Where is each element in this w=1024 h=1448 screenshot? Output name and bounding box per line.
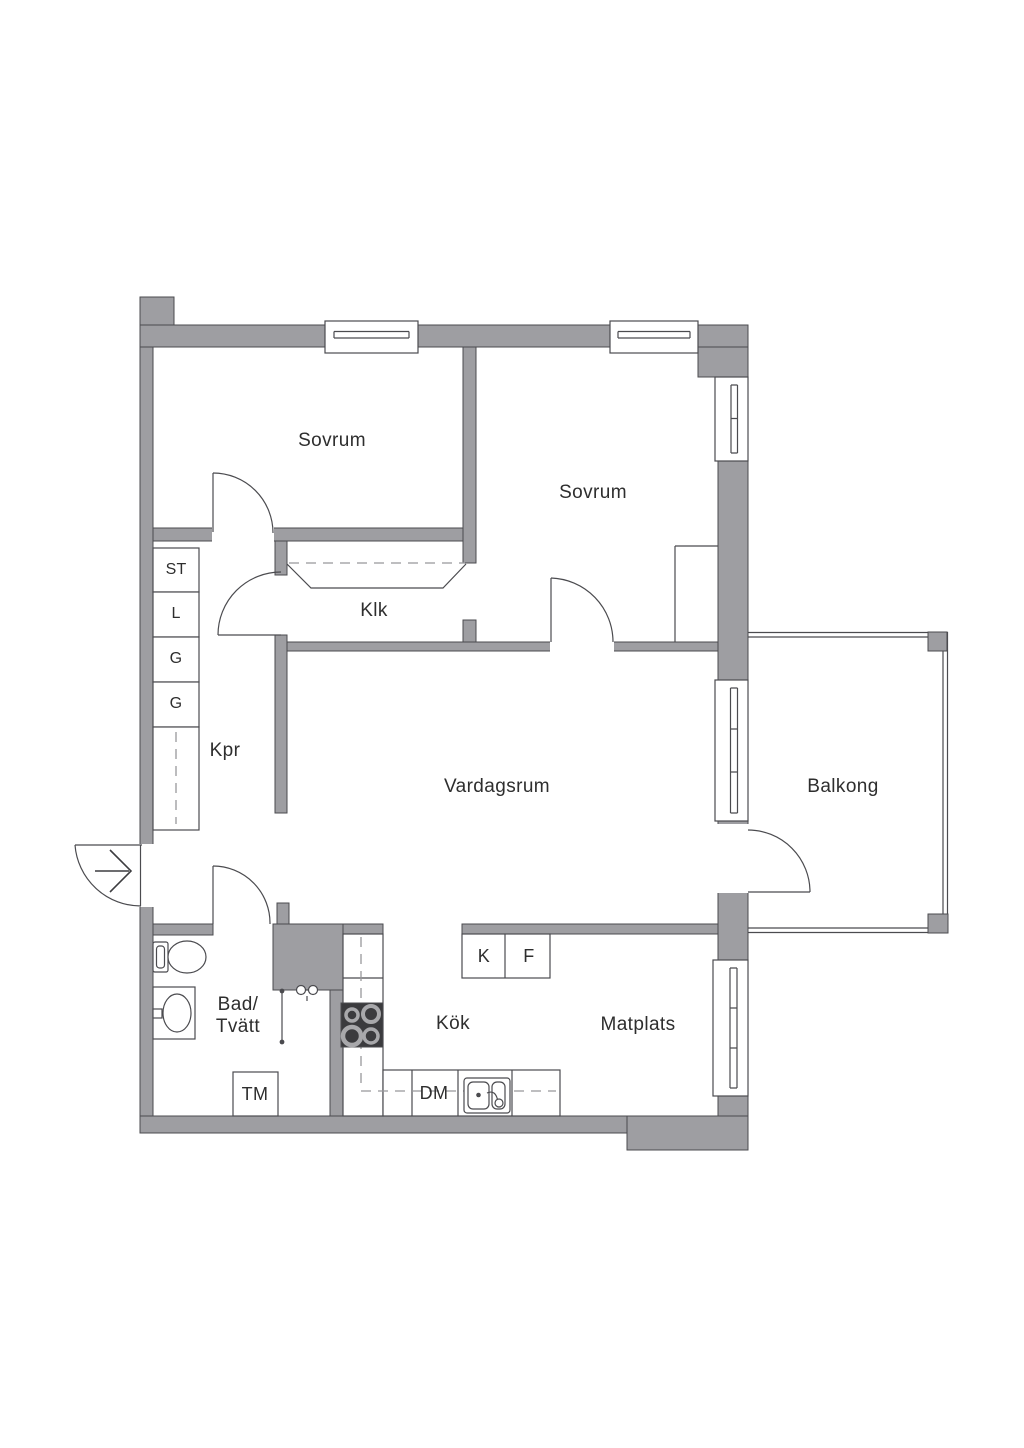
wall-top-left-block — [140, 297, 174, 325]
room-label-dining: Matplats — [600, 1014, 675, 1036]
room-label-kitchen: Kök — [436, 1013, 470, 1035]
wall-top-right-chunk — [698, 347, 748, 377]
fridge-label: K — [478, 945, 490, 967]
closet-label-g2: G — [170, 693, 183, 715]
window-dining — [713, 960, 748, 1096]
bedroom2-niche-outline — [675, 546, 718, 642]
window-bedroom2-top — [610, 321, 698, 353]
bedroom1-door — [213, 473, 273, 533]
stove-icon — [341, 1003, 383, 1047]
windows-layer — [325, 321, 748, 1096]
wall-bottom-left — [140, 1116, 627, 1133]
closet-label-st: ST — [166, 559, 187, 581]
wall-bedroom1-south — [153, 528, 463, 541]
bedroom2-opening — [550, 640, 614, 653]
washing-machine-label: TM — [242, 1083, 269, 1105]
shower-icon — [280, 986, 318, 1045]
bedroom1-opening — [212, 526, 274, 543]
floorplan-drawing — [0, 0, 1024, 1448]
room-label-bathroom: Bad/ Tvätt — [216, 994, 260, 1038]
wall-shaft-block — [273, 924, 343, 990]
window-bedroom1 — [325, 321, 418, 353]
room-label-bathroom-line2: Tvätt — [216, 1016, 260, 1037]
wall-bathroom-stub — [277, 903, 289, 925]
wall-living-north — [287, 642, 718, 651]
entrance-door — [75, 845, 142, 906]
room-label-walk-in-closet: Klk — [360, 600, 388, 622]
window-living-balcony — [715, 680, 748, 821]
bedroom2-door — [551, 578, 613, 642]
closet-units — [153, 548, 199, 830]
closet-label-l: L — [171, 603, 180, 625]
wardrobe-rail-symbol — [287, 563, 466, 588]
wall-closet-stub-upper — [275, 541, 287, 575]
wall-kitchen-north-right — [462, 924, 718, 934]
bathroom-door — [213, 866, 270, 924]
wall-hallway-living — [275, 635, 287, 813]
window-bedroom2-right — [715, 377, 748, 461]
room-label-bedroom-2: Sovrum — [559, 482, 627, 504]
closet-box-tall — [153, 727, 199, 830]
balcony-door — [748, 830, 810, 892]
freezer-label: F — [523, 945, 534, 967]
room-label-bathroom-line1: Bad/ — [218, 994, 259, 1015]
washbasin-icon — [153, 987, 195, 1039]
door-openings-layer — [138, 526, 750, 907]
room-label-balcony: Balkong — [807, 776, 878, 798]
wall-bottom-right — [627, 1116, 748, 1150]
room-label-hallway: Kpr — [210, 740, 241, 762]
balcony-post-top — [928, 632, 947, 651]
room-label-living-room: Vardagsrum — [444, 776, 550, 798]
entrance-arrow-icon — [95, 850, 131, 892]
closet-label-g1: G — [170, 648, 183, 670]
fridge-freezer-box — [462, 934, 550, 978]
dishwasher-label: DM — [420, 1082, 449, 1104]
closet-door — [218, 572, 281, 635]
wall-left — [140, 347, 153, 1133]
kitchen-sink-icon — [464, 1078, 510, 1113]
balcony-opening — [716, 824, 750, 893]
toilet-icon — [153, 941, 206, 973]
wall-bedroom-divider — [463, 347, 476, 563]
wall-stub-bedroom2-door — [463, 620, 476, 642]
balcony-post-bottom — [928, 914, 948, 933]
wall-bathroom-north — [153, 924, 213, 935]
room-label-bedroom-1: Sovrum — [298, 430, 366, 452]
floorplan-page: Sovrum Sovrum Klk Kpr Vardagsrum Balkong… — [0, 0, 1024, 1448]
